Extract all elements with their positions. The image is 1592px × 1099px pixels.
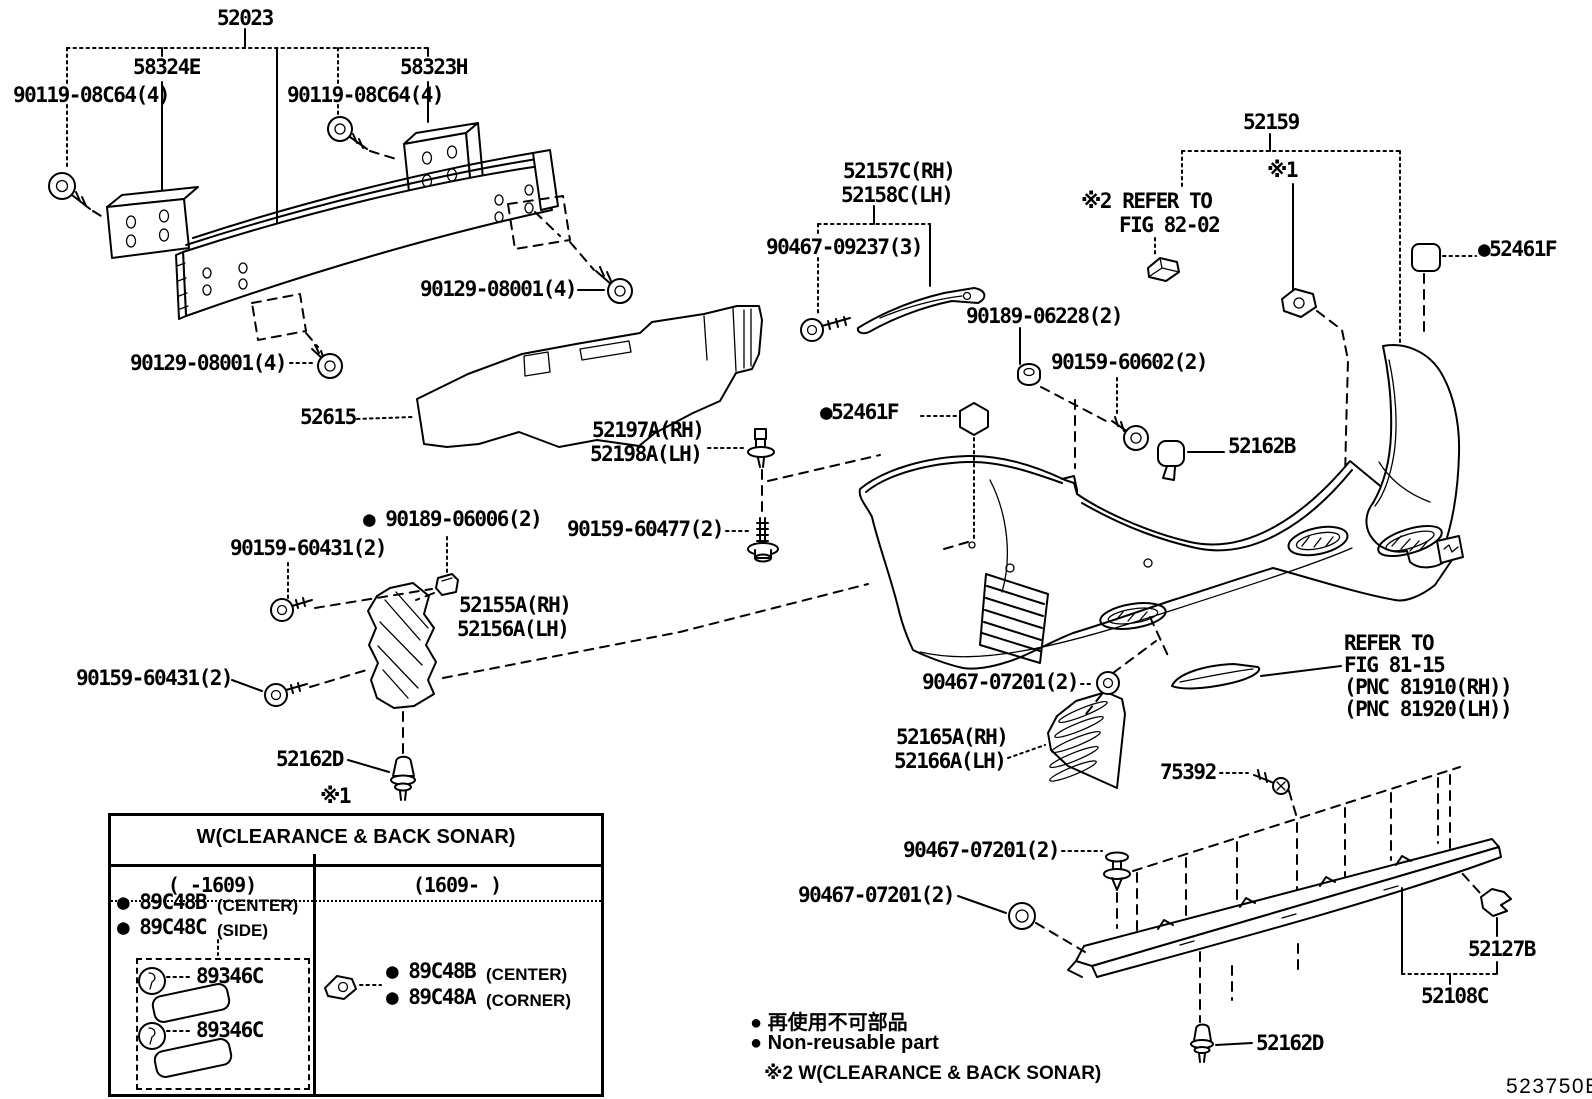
- screw-75392: [1220, 770, 1297, 818]
- table-part-89C48B-left-suffix: (CENTER): [217, 896, 298, 916]
- part-label-90129-08001-left: 90129-08001(4): [130, 353, 286, 374]
- quarter-panel-drawing: [1366, 345, 1463, 567]
- part-label-90119-08C64-right: 90119-08C64(4): [287, 85, 443, 106]
- part-label-90159-60602: 90159-60602(2): [1051, 352, 1207, 373]
- part-label-52157C: 52157C(RH): [843, 161, 954, 182]
- part-label-90159-60431-upper: 90159-60431(2): [230, 538, 386, 559]
- ref-fig-82-02-line2: FIG 82-02: [1119, 215, 1219, 236]
- part-label-90467-07201-top: 90467-07201(2): [903, 840, 1059, 861]
- bolt-60431-lower: [232, 669, 370, 706]
- note-non-reusable-jp: ● 再使用不可部品: [750, 1006, 908, 1035]
- clip-90467-mid: [1081, 641, 1156, 714]
- deck-trim-drawing: [1068, 839, 1501, 977]
- parts-diagram-page: W(CLEARANCE & BACK SONAR) ( -1609) (1609…: [0, 0, 1592, 1099]
- part-label-52155A: 52155A(RH): [459, 595, 570, 616]
- part-label-52166A: 52166A(LH): [894, 751, 1005, 772]
- part-label-52108C: 52108C: [1421, 986, 1488, 1007]
- part-label-52023: 52023: [217, 8, 273, 29]
- bolt-60431-upper: [271, 563, 432, 621]
- align-dash-60477-to-bumper: [768, 455, 880, 481]
- part-label-52615: 52615: [300, 407, 356, 428]
- ref-fig-82-02-line1: ※2 REFER TO: [1081, 191, 1211, 212]
- part-label-90467-07201-mid: 90467-07201(2): [922, 672, 1078, 693]
- figure-code: 523750E: [1506, 1075, 1592, 1099]
- table-divider: [313, 854, 316, 1094]
- note-non-reusable-en: ● Non-reusable part: [750, 1032, 939, 1055]
- bolt-pattern-left: [252, 294, 318, 347]
- part-label-75392: 75392: [1160, 762, 1216, 783]
- table-header: W(CLEARANCE & BACK SONAR): [111, 816, 601, 867]
- part-label-58323H: 58323H: [400, 57, 467, 78]
- ref-fig-81-15-line1: REFER TO: [1344, 633, 1433, 654]
- ref-fig-81-15-line2: FIG 81-15: [1344, 655, 1444, 676]
- part-label-90119-08C64-left: 90119-08C64(4): [13, 85, 169, 106]
- clip-52159: [1282, 289, 1370, 523]
- retainer-52157-drawing: [801, 206, 984, 341]
- part-label-52162B: 52162B: [1228, 436, 1295, 457]
- table-part-89C48C-suffix: (SIDE): [217, 921, 268, 941]
- part-label-52156A: 52156A(LH): [457, 619, 568, 640]
- part-label-52197A: 52197A(RH): [592, 420, 703, 441]
- part-label-52461F-mid: ●52461F: [820, 402, 898, 423]
- part-label-52158C: 52158C(LH): [841, 185, 952, 206]
- label-tree-52023: [67, 29, 428, 232]
- part-label-52162D-bottom: 52162D: [1256, 1033, 1323, 1054]
- screw-90129-left: [290, 345, 342, 378]
- part-label-52165A: 52165A(RH): [896, 727, 1007, 748]
- part-label-52162D-left: 52162D: [276, 749, 343, 770]
- reflector-drawing: [1150, 617, 1341, 688]
- screw-52197A: [708, 429, 774, 514]
- bolt-pattern-right: [508, 196, 594, 270]
- table-part-89C48B-right: ● 89C48B: [386, 961, 475, 982]
- table-part-89C48B-right-suffix: (CENTER): [486, 965, 567, 985]
- part-label-90467-07201-bottom: 90467-07201(2): [798, 885, 954, 906]
- screw-90159-60602: [1112, 378, 1148, 450]
- ref-fig-81-15-line3: (PNC 81910(RH)): [1344, 677, 1511, 698]
- part-label-90189-06228: 90189-06228(2): [966, 306, 1122, 327]
- part-label-52461F-top: ●52461F: [1478, 239, 1556, 260]
- part-label-90467-09237: 90467-09237(3): [766, 237, 922, 258]
- cap-52461F-top: [1412, 244, 1476, 338]
- clip-90467-top: [1062, 851, 1130, 928]
- part-label-58324E: 58324E: [133, 57, 200, 78]
- part-label-90129-08001-right: 90129-08001(4): [420, 279, 576, 300]
- screw-90129-right: [578, 267, 632, 303]
- part-label-52159: 52159: [1243, 112, 1299, 133]
- table-part-89C48C: ● 89C48C: [117, 917, 206, 938]
- part-label-52127B: 52127B: [1468, 939, 1535, 960]
- grille-52165-drawing: [1008, 692, 1125, 788]
- note-sonar-variant: ※2 W(CLEARANCE & BACK SONAR): [764, 1062, 1101, 1085]
- nut-90189-06006: [416, 537, 458, 600]
- table-part-89C48B-left: ● 89C48B: [117, 892, 206, 913]
- part-label-52198A: 52198A(LH): [590, 444, 701, 465]
- clip-52162B: [1158, 441, 1224, 480]
- table-part-89346C-1: 89346C: [196, 966, 263, 987]
- sonar-variant-table: W(CLEARANCE & BACK SONAR) ( -1609) (1609…: [108, 813, 604, 1097]
- nut-90189-06228: [1018, 328, 1106, 468]
- ref-fig-81-15-line4: (PNC 81920(LH)): [1344, 699, 1511, 720]
- bolt-90119-left: [49, 173, 106, 219]
- part-label-90159-60431-lower: 90159-60431(2): [76, 668, 232, 689]
- pin-52162D-left: [348, 712, 415, 800]
- bracket-58323H-drawing: [404, 123, 483, 201]
- screw-90159-60477: [726, 518, 778, 562]
- clip-52127B: [1481, 889, 1511, 936]
- table-col-late: (1609- ): [313, 867, 601, 900]
- clip-fig-82-02: [1148, 238, 1179, 281]
- note-ref1-table: ※1: [320, 786, 350, 807]
- table-part-89346C-2: 89346C: [196, 1020, 263, 1041]
- part-label-90189-06006: ● 90189-06006(2): [363, 509, 541, 530]
- bolt-90119-right: [328, 117, 396, 159]
- pin-52162D-bottom: [1191, 1025, 1252, 1063]
- table-part-89C48A-suffix: (CORNER): [486, 991, 571, 1011]
- part-label-90159-60477: 90159-60477(2): [567, 519, 723, 540]
- table-part-89C48A: ● 89C48A: [386, 987, 475, 1008]
- support-52155-drawing: [368, 583, 436, 708]
- note-ref1-52159: ※1: [1267, 160, 1297, 181]
- cap-52461F-mid: [921, 403, 988, 549]
- bracket-52108C: [1402, 888, 1497, 984]
- nut-90467-bottom: [958, 896, 1085, 952]
- bracket-58324E-drawing: [107, 187, 198, 258]
